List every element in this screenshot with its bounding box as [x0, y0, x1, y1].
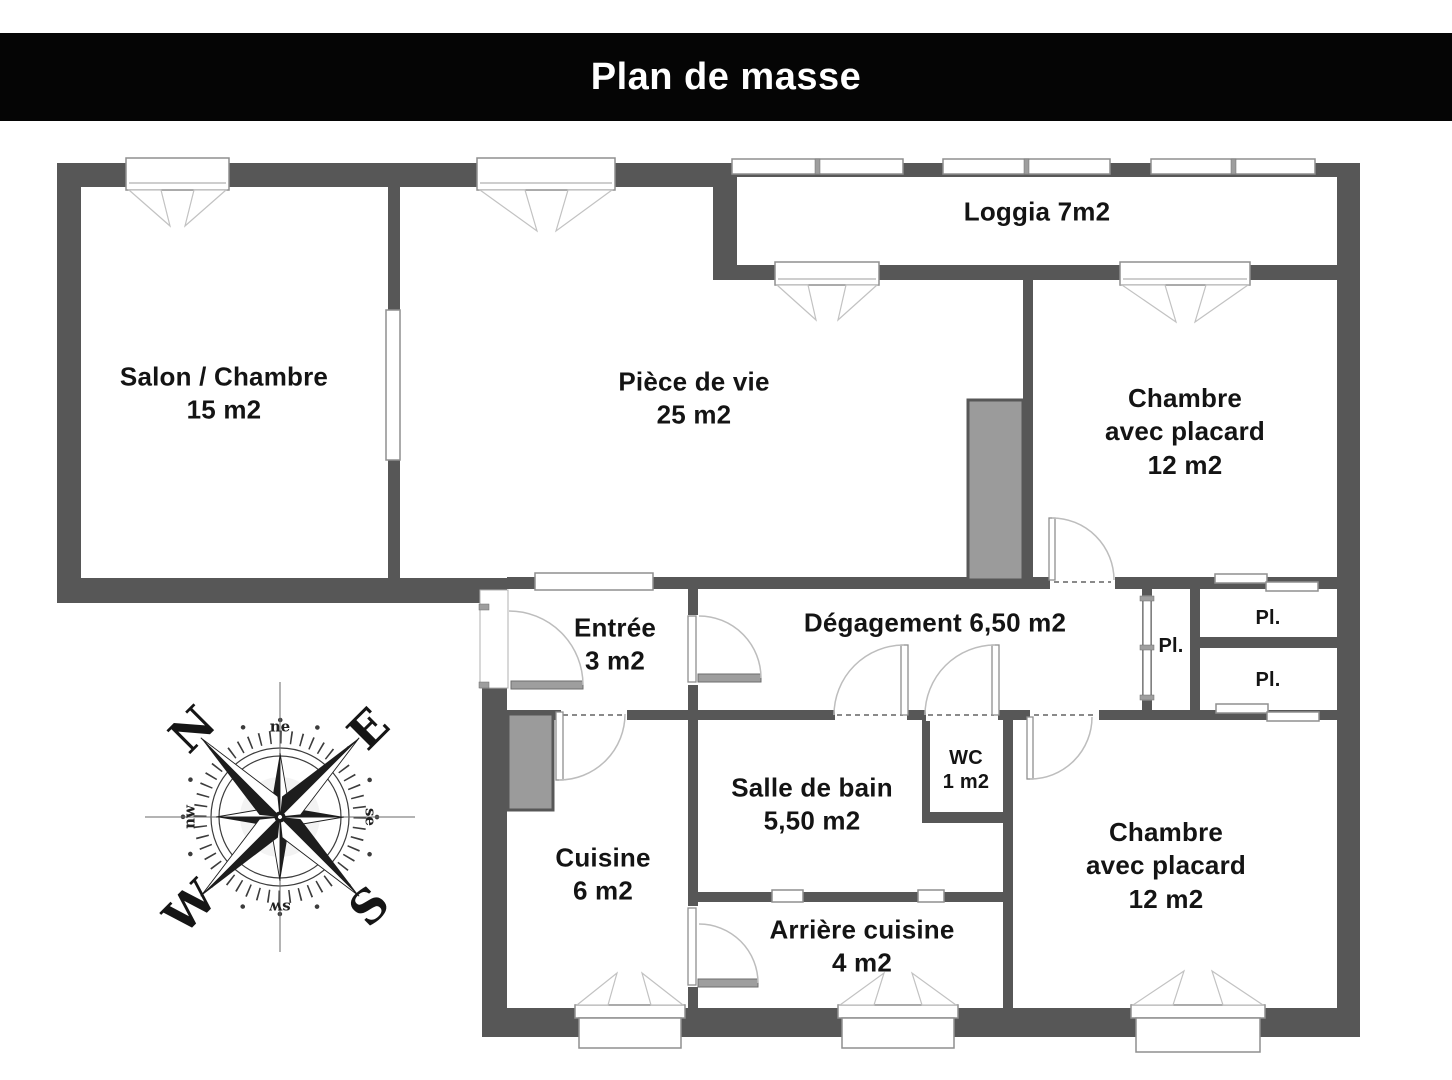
bay-entree-piece-de-vie [535, 573, 653, 590]
room-label-placard-couloir: Pl. [1158, 634, 1183, 658]
window-piece-de-vie [477, 158, 615, 231]
room-label-placard-haut: Pl. [1255, 606, 1280, 630]
door-chambre-nord [1049, 518, 1114, 582]
room-label-arriere-cuisine: Arrière cuisine 4 m2 [769, 914, 954, 981]
compass-ne-label: ne [270, 717, 290, 735]
room-label-placard-bas: Pl. [1255, 668, 1280, 692]
windows-layer [126, 158, 1319, 1052]
door-wc [925, 645, 999, 715]
room-label-wc: WC 1 m2 [943, 746, 989, 794]
entry-door [509, 611, 583, 689]
room-label-chambre-sud: Chambre avec placard 12 m2 [1086, 816, 1246, 916]
window-salon-piece-de-vie [386, 310, 400, 460]
duct-shaft [968, 400, 1023, 580]
compass-se-label: se [362, 808, 380, 826]
door-salle-de-bain [834, 645, 908, 715]
window-arriere-cuisine [838, 973, 958, 1048]
window-loggia-chambre [1120, 262, 1250, 322]
window-cuisine [575, 973, 685, 1048]
floor-plan-drawing: N E S W ne se sw nw [0, 0, 1452, 1080]
room-label-loggia: Loggia 7m2 [964, 195, 1110, 228]
room-label-piece-de-vie: Pièce de vie 25 m2 [618, 366, 769, 433]
room-label-entree: Entrée 3 m2 [574, 612, 656, 679]
window-loggia-piece-de-vie [775, 262, 879, 320]
room-label-salon: Salon / Chambre 15 m2 [120, 361, 328, 428]
window-chambre-sud [1131, 971, 1265, 1052]
compass-sw-label: sw [268, 899, 290, 917]
door-cuisine [556, 712, 625, 780]
floor-plan-page: Plan de masse [0, 0, 1452, 1080]
door-chambre-sud [1027, 715, 1095, 779]
room-label-degagement: Dégagement 6,50 m2 [804, 606, 1066, 639]
window-salon [126, 158, 229, 226]
room-label-chambre-nord: Chambre avec placard 12 m2 [1105, 382, 1265, 482]
room-label-salle-de-bain: Salle de bain 5,50 m2 [731, 772, 893, 839]
window-loggia-top [732, 159, 1315, 174]
compass-rose: N E S W ne se sw nw [64, 609, 489, 1034]
duct-kitchen [508, 714, 553, 810]
room-label-cuisine: Cuisine 6 m2 [555, 842, 650, 909]
compass-nw-label: nw [180, 804, 198, 829]
